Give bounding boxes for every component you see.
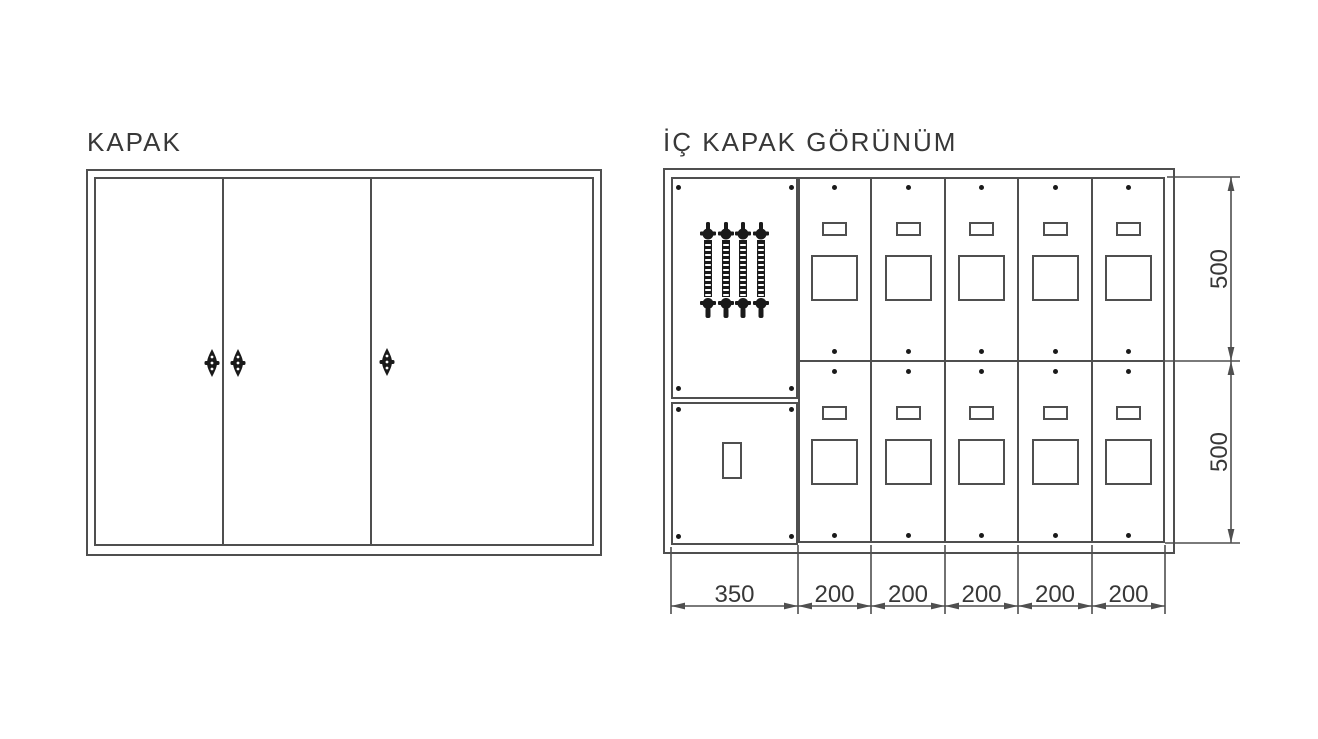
screw-dot [1053, 349, 1058, 354]
screw-dot [832, 369, 837, 374]
technical-drawing-canvas: KAPAK İÇ KAPAK GÖRÜNÜM [0, 0, 1318, 739]
door-lock-icon [230, 348, 246, 378]
dim-label-width-0: 350 [714, 581, 754, 608]
dim-label-width-1: 200 [814, 581, 854, 608]
busbar [718, 222, 734, 318]
door-divider-left [222, 179, 224, 544]
screw-dot [789, 185, 794, 190]
screw-dot [1126, 185, 1131, 190]
left-view-title: KAPAK [87, 129, 182, 155]
meter-window [958, 439, 1005, 485]
screw-dot [1053, 369, 1058, 374]
meter-label-window [969, 222, 994, 236]
screw-dot [676, 185, 681, 190]
busbar [700, 222, 716, 318]
busbar [735, 222, 751, 318]
meter-label-window [1116, 406, 1141, 420]
screw-dot [832, 533, 837, 538]
meter-window [811, 439, 858, 485]
screw-dot [906, 349, 911, 354]
meter-window [811, 255, 858, 301]
meter-label-window [1043, 406, 1068, 420]
screw-dot [676, 407, 681, 412]
screw-dot [906, 185, 911, 190]
screw-dot [979, 185, 984, 190]
meter-window [1105, 439, 1152, 485]
dim-label-width-3: 200 [961, 581, 1001, 608]
right-view-title: İÇ KAPAK GÖRÜNÜM [663, 129, 957, 155]
door-lock-icon [379, 347, 395, 377]
meter-label-window [1043, 222, 1068, 236]
front-cover-inner-frame [94, 177, 594, 546]
door-lock-icon [204, 348, 220, 378]
screw-dot [832, 349, 837, 354]
dim-label-height-top: 500 [1206, 249, 1233, 289]
meter-window [885, 439, 932, 485]
meter-window [1032, 439, 1079, 485]
screw-dot [676, 534, 681, 539]
screw-dot [789, 534, 794, 539]
meter-window [1105, 255, 1152, 301]
meter-row-divider [798, 360, 1165, 362]
dim-label-width-4: 200 [1035, 581, 1075, 608]
screw-dot [906, 533, 911, 538]
screw-dot [1053, 533, 1058, 538]
screw-dot [789, 407, 794, 412]
dim-label-width-5: 200 [1108, 581, 1148, 608]
meter-label-window [822, 222, 847, 236]
screw-dot [789, 386, 794, 391]
screw-dot [1126, 533, 1131, 538]
screw-dot [906, 369, 911, 374]
meter-label-window [1116, 222, 1141, 236]
dim-label-width-2: 200 [888, 581, 928, 608]
meter-label-window [969, 406, 994, 420]
meter-window [885, 255, 932, 301]
screw-dot [1053, 185, 1058, 190]
meter-label-window [896, 406, 921, 420]
dim-label-height-bottom: 500 [1206, 432, 1233, 472]
screw-dot [676, 386, 681, 391]
screw-dot [832, 185, 837, 190]
busbar [753, 222, 769, 318]
meter-label-window [822, 406, 847, 420]
switch-window [722, 442, 742, 479]
screw-dot [979, 349, 984, 354]
meter-label-window [896, 222, 921, 236]
busbar-group [671, 177, 798, 399]
meter-window [1032, 255, 1079, 301]
meter-window [958, 255, 1005, 301]
screw-dot [979, 533, 984, 538]
screw-dot [1126, 369, 1131, 374]
door-divider-right [370, 179, 372, 544]
screw-dot [979, 369, 984, 374]
screw-dot [1126, 349, 1131, 354]
